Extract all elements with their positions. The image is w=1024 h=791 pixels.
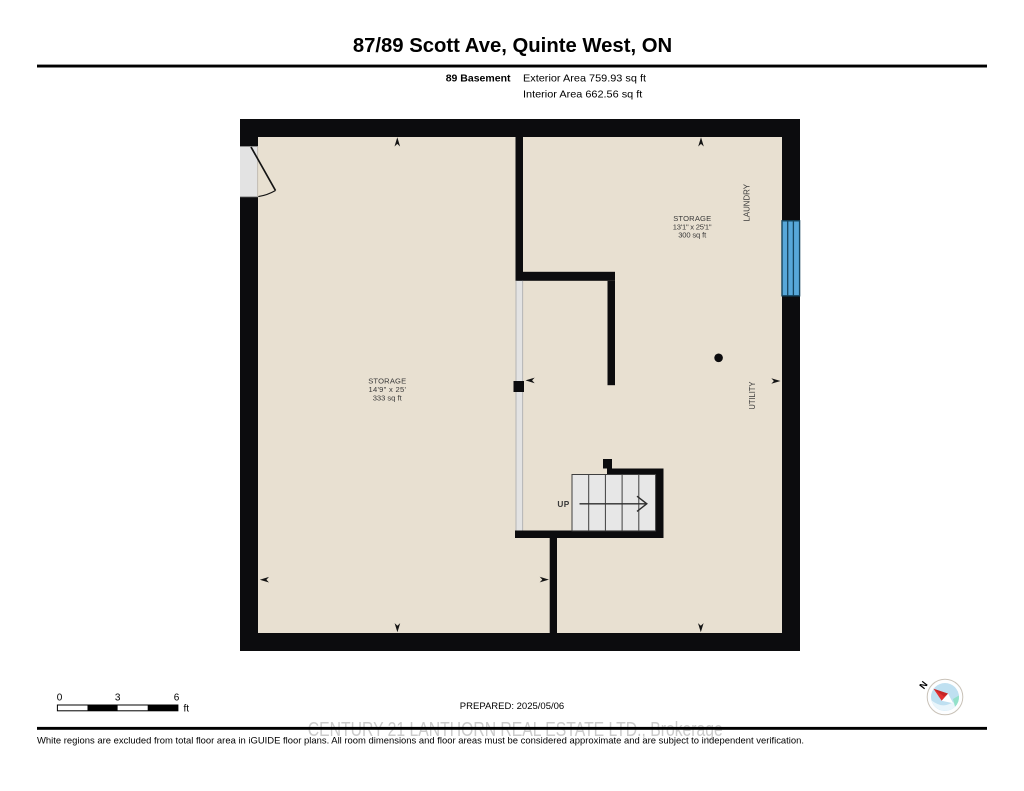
svg-text:Exterior Area 759.93 sq ft: Exterior Area 759.93 sq ft [523, 72, 646, 84]
svg-text:89 Basement: 89 Basement [446, 72, 511, 84]
svg-text:333 sq ft: 333 sq ft [373, 394, 403, 403]
svg-text:3: 3 [115, 693, 121, 704]
svg-text:87/89 Scott Ave, Quinte West,: 87/89 Scott Ave, Quinte West, ON [353, 35, 672, 57]
svg-text:0: 0 [57, 693, 63, 704]
svg-text:UP: UP [557, 499, 569, 509]
svg-text:300 sq ft: 300 sq ft [678, 231, 707, 240]
svg-text:Interior Area 662.56 sq ft: Interior Area 662.56 sq ft [523, 88, 642, 100]
svg-text:6: 6 [174, 693, 180, 704]
svg-text:ft: ft [184, 704, 190, 715]
svg-text:UTILITY: UTILITY [748, 381, 757, 410]
svg-text:LAUNDRY: LAUNDRY [742, 183, 751, 221]
svg-text:PREPARED: 2025/05/06: PREPARED: 2025/05/06 [460, 701, 564, 712]
svg-text:White regions are excluded fro: White regions are excluded from total fl… [37, 736, 804, 746]
